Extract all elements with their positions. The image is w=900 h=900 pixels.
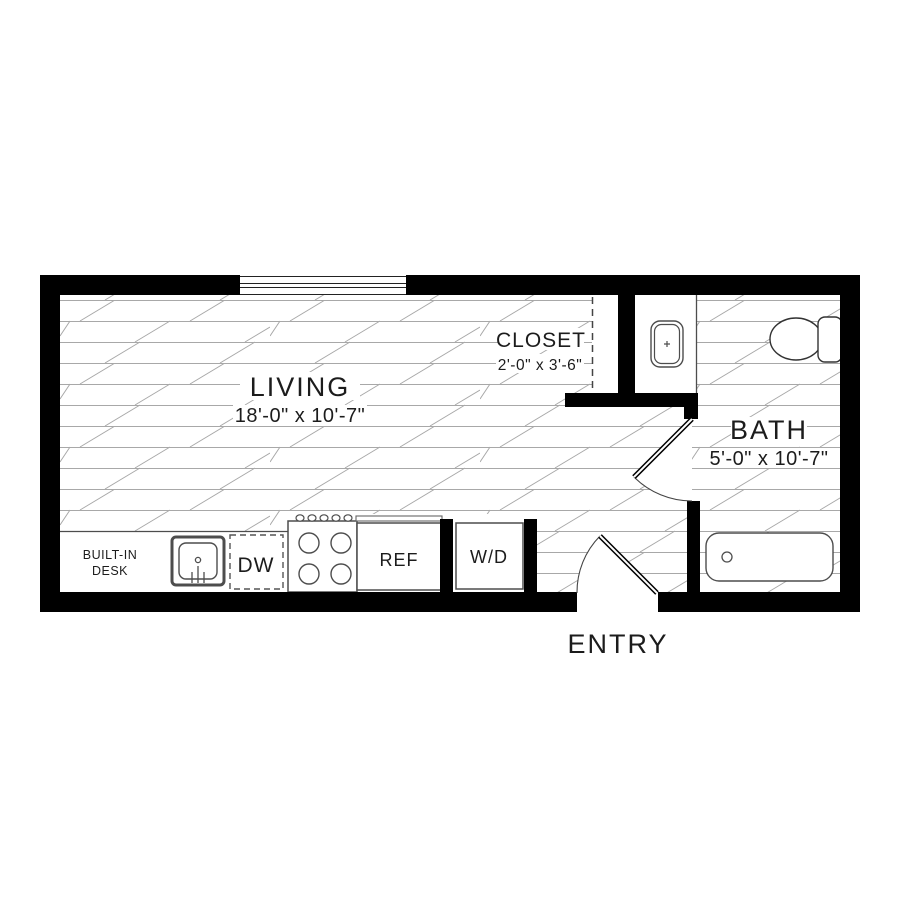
wall-right <box>840 275 860 612</box>
bath-label: BATH <box>730 415 808 445</box>
living-dims: 18'-0" x 10'-7" <box>235 405 366 427</box>
closet-label: CLOSET <box>496 329 586 352</box>
stove-icon <box>288 515 357 592</box>
toilet-icon <box>770 317 842 362</box>
wall-left <box>40 275 60 612</box>
wall-bottom-right <box>658 592 860 612</box>
wall-top-right <box>406 275 860 295</box>
wall-closet <box>618 293 635 393</box>
closet-floor <box>592 293 618 393</box>
floor-plan-page: DW REF W/D <box>0 0 900 900</box>
wall-hall <box>565 393 698 407</box>
wall-bath-lower <box>687 501 700 592</box>
built-in-desk-label-line1: BUILT-IN <box>83 548 137 562</box>
window-icon <box>240 275 406 295</box>
wall-stub-wd <box>524 519 537 592</box>
wall-bottom-left <box>40 592 577 612</box>
bath-dims: 5'-0" x 10'-7" <box>710 448 829 470</box>
washer-dryer-label: W/D <box>470 547 508 567</box>
refrigerator-icon: REF <box>356 516 442 590</box>
refrigerator-label: REF <box>380 550 419 570</box>
living-label: LIVING <box>250 372 351 402</box>
bathtub-icon <box>706 533 833 581</box>
vanity-sink-icon <box>651 321 683 367</box>
dishwasher-label: DW <box>238 554 275 577</box>
entry-label: ENTRY <box>567 629 668 659</box>
washer-dryer-icon: W/D <box>456 523 523 589</box>
wall-top-left <box>40 275 240 295</box>
closet-dims: 2'-0" x 3'-6" <box>498 357 583 374</box>
kitchen-sink-icon <box>172 537 224 585</box>
floor-plan-canvas: DW REF W/D <box>0 0 900 900</box>
wall-bath-jamb <box>684 407 698 419</box>
wall-stub-ref <box>440 519 453 592</box>
built-in-desk-label-line2: DESK <box>92 564 128 578</box>
